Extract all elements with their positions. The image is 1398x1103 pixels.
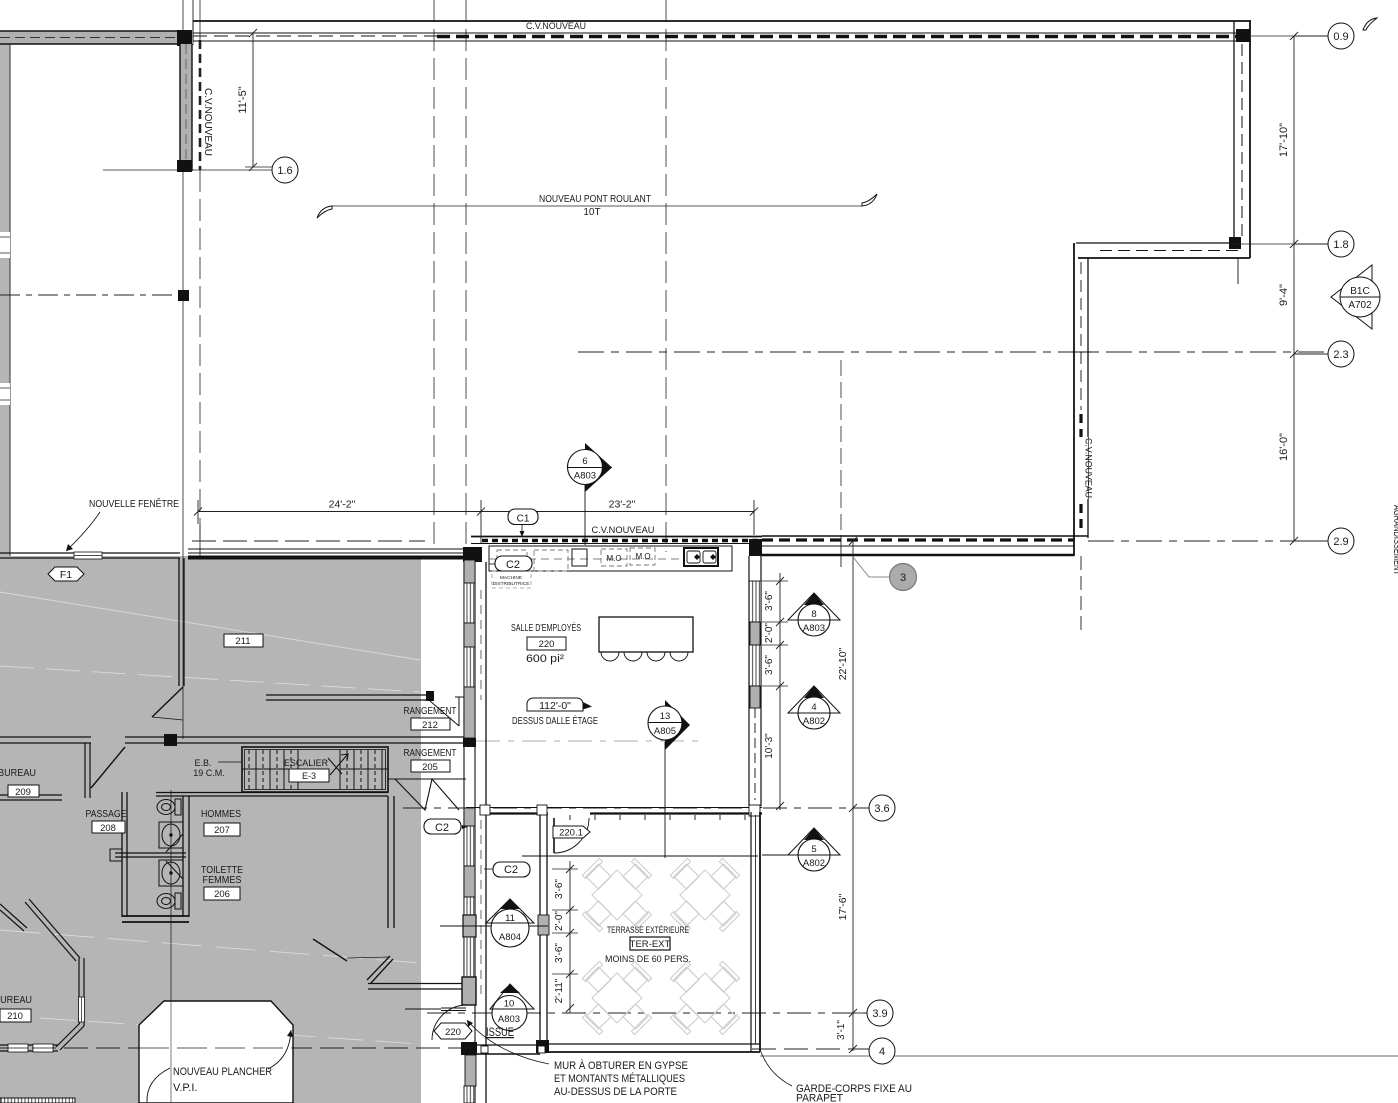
svg-text:M.O: M.O <box>606 554 621 563</box>
svg-text:3.6: 3.6 <box>874 803 889 815</box>
svg-text:BUREAU: BUREAU <box>0 995 32 1006</box>
svg-text:TERRASSE EXTÉRIEURE: TERRASSE EXTÉRIEURE <box>607 925 689 936</box>
svg-text:MUR À OBTURER EN GYPSE: MUR À OBTURER EN GYPSE <box>554 1059 688 1072</box>
svg-text:23'-2": 23'-2" <box>609 499 636 511</box>
svg-text:2'-0": 2'-0" <box>554 911 565 931</box>
svg-text:16'-0": 16'-0" <box>1278 433 1290 461</box>
svg-text:RANGEMENT: RANGEMENT <box>404 706 457 717</box>
svg-text:A804: A804 <box>499 932 521 943</box>
svg-text:208: 208 <box>100 823 116 834</box>
svg-text:3'-6": 3'-6" <box>764 655 775 675</box>
svg-text:11: 11 <box>505 913 515 924</box>
svg-text:NOUVEAU PLANCHER: NOUVEAU PLANCHER <box>173 1066 272 1078</box>
svg-text:2.3: 2.3 <box>1333 349 1348 361</box>
svg-text:C.V.NOUVEAU: C.V.NOUVEAU <box>1084 438 1094 498</box>
svg-text:5: 5 <box>811 844 816 855</box>
svg-text:HOMMES: HOMMES <box>201 809 241 820</box>
svg-text:3.9: 3.9 <box>872 1008 887 1020</box>
svg-text:17'-10": 17'-10" <box>1278 123 1290 157</box>
svg-text:RANGEMENT: RANGEMENT <box>404 748 457 759</box>
svg-text:C.V.NOUVEAU: C.V.NOUVEAU <box>202 88 213 156</box>
svg-text:9'-4": 9'-4" <box>1278 284 1290 306</box>
svg-text:MOINS DE 60 PERS.: MOINS DE 60 PERS. <box>605 954 691 965</box>
svg-text:207: 207 <box>214 825 230 836</box>
svg-text:SALLE D'EMPLOYÉS: SALLE D'EMPLOYÉS <box>511 621 581 634</box>
svg-text:205: 205 <box>422 762 438 773</box>
svg-text:NOUVEAU PONT ROULANT: NOUVEAU PONT ROULANT <box>539 194 651 205</box>
svg-text:24'-2": 24'-2" <box>329 499 356 511</box>
svg-text:220: 220 <box>539 639 555 650</box>
svg-text:DESSUS DALLE ÉTAGE: DESSUS DALLE ÉTAGE <box>512 714 598 727</box>
svg-text:C2: C2 <box>506 559 520 571</box>
svg-text:C.V.NOUVEAU: C.V.NOUVEAU <box>592 525 655 536</box>
svg-text:DISTRIBUTRICE: DISTRIBUTRICE <box>493 581 530 587</box>
svg-text:17'-6": 17'-6" <box>837 893 849 920</box>
svg-text:M.O: M.O <box>635 552 650 561</box>
svg-text:FEMMES: FEMMES <box>203 875 242 886</box>
svg-text:209: 209 <box>15 787 31 798</box>
svg-text:600 pi²: 600 pi² <box>526 653 564 665</box>
svg-text:1.6: 1.6 <box>277 165 292 177</box>
svg-text:F1: F1 <box>60 569 72 581</box>
svg-text:2.9: 2.9 <box>1333 536 1348 548</box>
svg-text:1.8: 1.8 <box>1333 239 1348 251</box>
svg-text:112'-0": 112'-0" <box>539 700 571 712</box>
svg-text:E.B.: E.B. <box>194 758 211 768</box>
svg-text:MACHINE: MACHINE <box>500 575 522 581</box>
svg-text:11'-5": 11'-5" <box>237 86 249 113</box>
svg-text:10T: 10T <box>583 207 600 218</box>
svg-text:NOUVELLE FENÊTRE: NOUVELLE FENÊTRE <box>89 497 179 510</box>
svg-text:A702: A702 <box>1348 300 1372 311</box>
svg-text:4: 4 <box>811 702 816 713</box>
svg-text:4: 4 <box>879 1046 885 1058</box>
svg-text:212: 212 <box>422 720 438 731</box>
svg-text:220: 220 <box>445 1027 461 1038</box>
svg-text:C1: C1 <box>517 514 530 525</box>
svg-text:206: 206 <box>214 889 230 900</box>
svg-text:3'-6": 3'-6" <box>764 591 775 611</box>
svg-text:6: 6 <box>582 456 587 467</box>
svg-text:8: 8 <box>811 609 816 620</box>
svg-text:PARAPET: PARAPET <box>796 1093 843 1103</box>
svg-text:A802: A802 <box>803 858 825 869</box>
svg-text:3'-6": 3'-6" <box>554 879 565 899</box>
svg-text:BUREAU: BUREAU <box>0 768 36 779</box>
svg-text:211: 211 <box>235 636 250 647</box>
svg-text:220.1: 220.1 <box>559 828 583 839</box>
svg-text:210: 210 <box>7 1011 23 1022</box>
svg-text:AU-DESSUS DE LA PORTE: AU-DESSUS DE LA PORTE <box>554 1086 677 1098</box>
svg-text:ISSUE: ISSUE <box>486 1025 514 1039</box>
svg-text:C.V.NOUVEAU: C.V.NOUVEAU <box>526 21 586 32</box>
svg-text:PASSAGE: PASSAGE <box>86 809 127 820</box>
svg-text:2'-0": 2'-0" <box>764 623 775 643</box>
svg-text:10'-3": 10'-3" <box>764 733 775 759</box>
svg-text:3'-1": 3'-1" <box>836 1020 847 1040</box>
svg-text:A803: A803 <box>574 471 596 482</box>
svg-text:AGRANDISSEMENT: AGRANDISSEMENT <box>1391 505 1398 575</box>
svg-text:2'-11": 2'-11" <box>554 978 565 1003</box>
svg-text:3: 3 <box>900 572 906 584</box>
svg-text:10: 10 <box>504 999 515 1010</box>
svg-text:A805: A805 <box>654 726 676 737</box>
svg-text:0.9: 0.9 <box>1333 31 1348 43</box>
svg-text:19 C.M.: 19 C.M. <box>193 768 225 778</box>
svg-text:ET MONTANTS MÉTALLIQUES: ET MONTANTS MÉTALLIQUES <box>554 1072 685 1085</box>
svg-text:A803: A803 <box>803 623 825 634</box>
svg-text:13: 13 <box>660 711 671 722</box>
svg-text:ESCALIER: ESCALIER <box>284 758 328 769</box>
svg-text:V.P.I.: V.P.I. <box>173 1082 197 1094</box>
svg-text:C2: C2 <box>504 864 518 876</box>
svg-text:C2: C2 <box>435 822 449 834</box>
svg-text:E-3: E-3 <box>302 771 316 781</box>
svg-text:A802: A802 <box>803 716 825 727</box>
svg-text:22'-10": 22'-10" <box>837 647 849 680</box>
svg-text:A803: A803 <box>498 1014 520 1025</box>
svg-text:B1C: B1C <box>1350 286 1369 297</box>
svg-text:3'-6": 3'-6" <box>554 943 565 963</box>
svg-text:TER-EXT: TER-EXT <box>630 939 671 950</box>
